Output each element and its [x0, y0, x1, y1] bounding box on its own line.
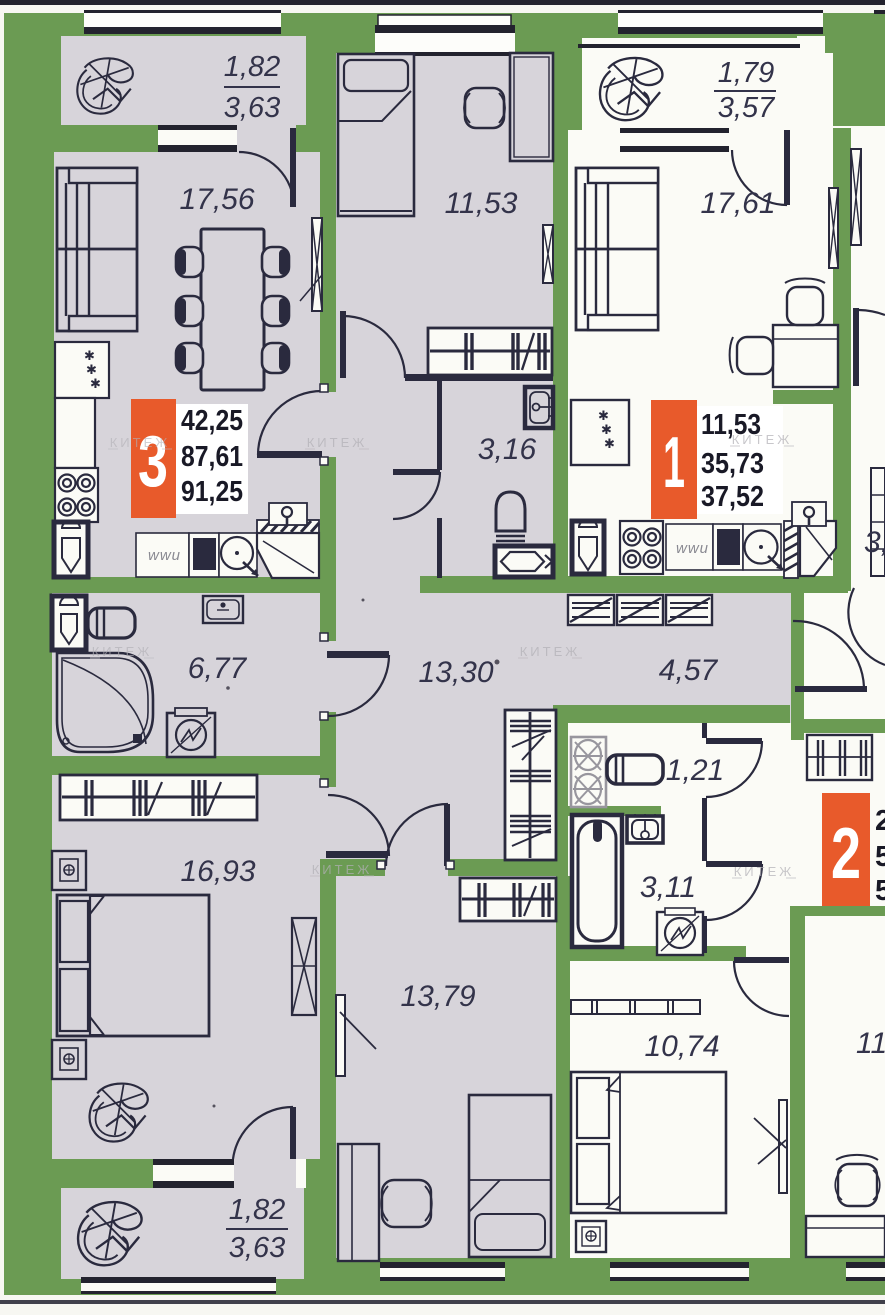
svg-text:35,73: 35,73 [701, 448, 764, 480]
svg-text:10,74: 10,74 [644, 1030, 719, 1063]
svg-text:1,82: 1,82 [229, 1194, 285, 1226]
svg-text:1,79: 1,79 [718, 57, 774, 89]
svg-text:3,11: 3,11 [640, 871, 696, 904]
svg-text:3,63: 3,63 [224, 92, 280, 124]
svg-text:13,79: 13,79 [400, 980, 475, 1013]
svg-text:2: 2 [875, 805, 885, 837]
svg-text:КИТЕЖ: КИТЕЖ [110, 435, 171, 450]
svg-text:5: 5 [875, 841, 885, 873]
svg-text:wwu: wwu [676, 540, 709, 557]
svg-text:17,61: 17,61 [700, 187, 775, 220]
svg-text:16,93: 16,93 [180, 855, 255, 888]
svg-text:13,30: 13,30 [418, 656, 493, 689]
svg-text:3,16: 3,16 [478, 433, 537, 466]
svg-text:КИТЕЖ: КИТЕЖ [92, 644, 153, 659]
svg-text:3: 3 [138, 422, 168, 502]
svg-text:2: 2 [831, 814, 861, 894]
svg-text:91,25: 91,25 [181, 476, 243, 508]
svg-text:✱: ✱ [604, 436, 615, 451]
svg-text:✱: ✱ [90, 376, 101, 391]
svg-text:11,: 11, [856, 1027, 885, 1060]
svg-text:КИТЕЖ: КИТЕЖ [307, 435, 368, 450]
svg-text:1,82: 1,82 [224, 51, 280, 83]
svg-text:✱: ✱ [84, 348, 95, 363]
svg-text:КИТЕЖ: КИТЕЖ [734, 864, 795, 879]
svg-text:3,57: 3,57 [718, 92, 776, 124]
svg-text:КИТЕЖ: КИТЕЖ [520, 644, 581, 659]
svg-text:КИТЕЖ: КИТЕЖ [732, 432, 793, 447]
svg-text:wwu: wwu [148, 547, 181, 564]
svg-text:3,63: 3,63 [229, 1232, 285, 1264]
svg-text:42,25: 42,25 [181, 405, 243, 437]
svg-text:1: 1 [663, 423, 685, 503]
svg-text:1,21: 1,21 [666, 754, 724, 787]
svg-text:✱: ✱ [601, 422, 612, 437]
svg-text:37,52: 37,52 [701, 481, 764, 513]
svg-text:✱: ✱ [86, 362, 97, 377]
svg-text:3,: 3, [864, 526, 885, 559]
svg-text:6,77: 6,77 [188, 652, 248, 685]
svg-text:11,53: 11,53 [445, 187, 518, 220]
svg-text:4,57: 4,57 [659, 654, 719, 687]
svg-text:5: 5 [875, 875, 885, 907]
svg-text:17,56: 17,56 [179, 183, 254, 216]
svg-text:КИТЕЖ: КИТЕЖ [312, 862, 373, 877]
svg-text:✱: ✱ [598, 408, 609, 423]
svg-text:87,61: 87,61 [181, 441, 243, 473]
